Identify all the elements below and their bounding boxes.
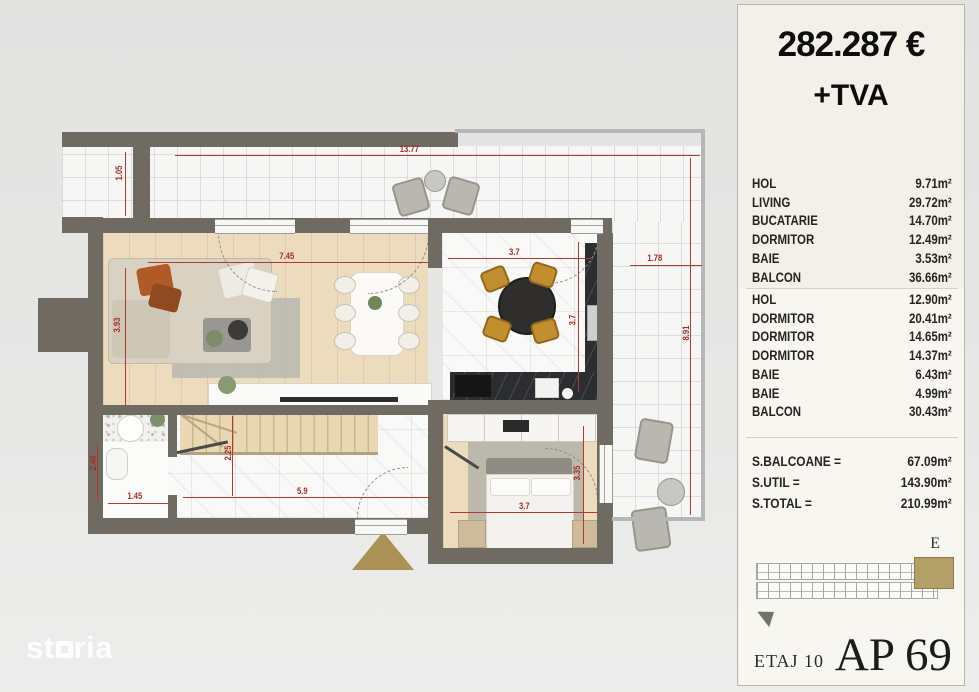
- nightstand: [458, 520, 486, 548]
- dim-line: [97, 444, 98, 502]
- room-list-level2: HOL12.90m² DORMITOR20.41m² DORMITOR14.65…: [752, 291, 952, 422]
- nightstand: [572, 520, 600, 548]
- total-row: S.TOTAL =210.99m²: [752, 493, 952, 514]
- divider: [746, 437, 958, 438]
- total-row: S.UTIL =143.90m²: [752, 472, 952, 493]
- vat-label: +TVA: [738, 79, 964, 113]
- dim-kitchen-width: 3.7: [509, 247, 520, 257]
- dim-line: [125, 152, 126, 216]
- side-table: [228, 320, 248, 340]
- dim-line: [578, 242, 579, 392]
- balcony-railing: [455, 129, 705, 133]
- wall: [597, 233, 613, 563]
- totals-list: S.BALCOANE =67.09m² S.UTIL =143.90m² S.T…: [752, 451, 952, 514]
- cooktop: [455, 375, 491, 397]
- mini-plan-row: [756, 563, 938, 580]
- dim-balcony-right-width: 1.78: [647, 253, 662, 263]
- building-mini-plan: [756, 563, 952, 605]
- dim-balcony-right-height: 8.91: [681, 326, 691, 341]
- entrance-arrow: [352, 532, 414, 570]
- wall: [168, 495, 177, 520]
- dim-bedroom-width: 3.7: [519, 501, 530, 511]
- room-row: BAIE6.43m²: [752, 366, 952, 385]
- balcony-table: [657, 478, 685, 506]
- dim-line: [108, 503, 168, 504]
- price: 282.287 €: [738, 25, 964, 65]
- dim-line: [183, 497, 433, 498]
- sink-bowl: [562, 388, 573, 399]
- storia-square-o: [56, 641, 73, 658]
- wall: [168, 412, 177, 457]
- bedroom-balcony-door: [599, 445, 613, 503]
- room-row: LIVING29.72m²: [752, 194, 952, 213]
- room-row: BUCATARIE14.70m²: [752, 212, 952, 231]
- dim-line: [148, 262, 428, 263]
- wall: [428, 233, 442, 268]
- tv: [280, 397, 398, 402]
- dim-line: [125, 268, 126, 405]
- dim-hall-width: 5.9: [297, 486, 308, 496]
- room-row: BALCON30.43m²: [752, 403, 952, 422]
- living-window: [350, 219, 428, 234]
- kitchen-sink: [535, 378, 559, 398]
- dim-bath-width: 1.45: [127, 491, 142, 501]
- dim-living-width: 7.45: [279, 251, 294, 261]
- wall: [62, 132, 458, 147]
- dim-balcony-top-width: 13.77: [400, 144, 419, 154]
- kitchen-balcony-door: [571, 219, 603, 234]
- apartment-number: AP 69: [835, 628, 952, 682]
- mini-plan-row: [756, 582, 938, 599]
- wall: [428, 400, 612, 414]
- living-window: [215, 219, 295, 234]
- floor-plan: 13.77 1.05 7.45 3.93 3.7 3.7 1.78 8.91 2…: [0, 0, 740, 692]
- dim-living-depth: 3.93: [112, 318, 122, 333]
- dining-chair: [398, 332, 420, 350]
- dining-chair: [334, 304, 356, 322]
- dining-chair: [334, 276, 356, 294]
- room-row: HOL12.90m²: [752, 291, 952, 310]
- room-row: BALCON36.66m²: [752, 269, 952, 288]
- wall: [428, 548, 613, 564]
- dim-stairs-depth: 2.25: [223, 446, 233, 461]
- dim-line: [175, 155, 700, 156]
- divider: [746, 288, 958, 289]
- total-row: S.BALCOANE =67.09m²: [752, 451, 952, 472]
- wall: [88, 230, 103, 530]
- room-row: DORMITOR14.65m²: [752, 328, 952, 347]
- dining-chair: [334, 332, 356, 350]
- dining-plant: [368, 296, 382, 310]
- room-row: BAIE4.99m²: [752, 385, 952, 404]
- room-row: BAIE3.53m²: [752, 250, 952, 269]
- wall: [88, 405, 433, 415]
- floor-label: ETAJ 10: [754, 651, 824, 672]
- pillow: [490, 478, 530, 496]
- room-list-level1: HOL9.71m² LIVING29.72m² BUCATARIE14.70m²…: [752, 175, 952, 287]
- balcony-chair: [634, 417, 675, 464]
- wall: [428, 412, 443, 564]
- dim-line: [630, 265, 702, 266]
- balcony-chair: [630, 506, 671, 553]
- room-row: HOL9.71m²: [752, 175, 952, 194]
- building-section-label: E: [930, 535, 940, 553]
- dim-line: [450, 512, 598, 513]
- dim-balcony-left-depth: 1.05: [114, 166, 124, 181]
- highlighted-unit: [914, 557, 954, 589]
- dresser-tv: [503, 420, 529, 432]
- dim-bath-depth: 2.40: [88, 456, 98, 471]
- staircase: [180, 413, 378, 455]
- dim-line: [448, 258, 592, 259]
- toilet: [106, 448, 128, 480]
- room-row: DORMITOR12.49m²: [752, 231, 952, 250]
- plant: [206, 330, 223, 347]
- room-row: DORMITOR20.41m²: [752, 310, 952, 329]
- bathroom-sink: [117, 415, 144, 442]
- dining-chair: [398, 304, 420, 322]
- entrance-door-gap: [355, 519, 407, 535]
- room-row: DORMITOR14.37m²: [752, 347, 952, 366]
- dim-bedroom-depth: 3.35: [572, 466, 582, 481]
- balcony-top-floor: [62, 146, 704, 224]
- balcony-railing: [612, 517, 704, 521]
- stair-handrail: [180, 452, 378, 455]
- console-plant: [218, 376, 236, 394]
- balcony-table: [424, 170, 446, 192]
- wall: [38, 298, 90, 352]
- storia-watermark: stria: [26, 630, 113, 666]
- info-panel: 282.287 € +TVA HOL9.71m² LIVING29.72m² B…: [737, 4, 965, 686]
- balcony-railing: [701, 129, 705, 521]
- dim-line: [583, 426, 584, 544]
- dim-kitchen-depth: 3.7: [567, 315, 577, 326]
